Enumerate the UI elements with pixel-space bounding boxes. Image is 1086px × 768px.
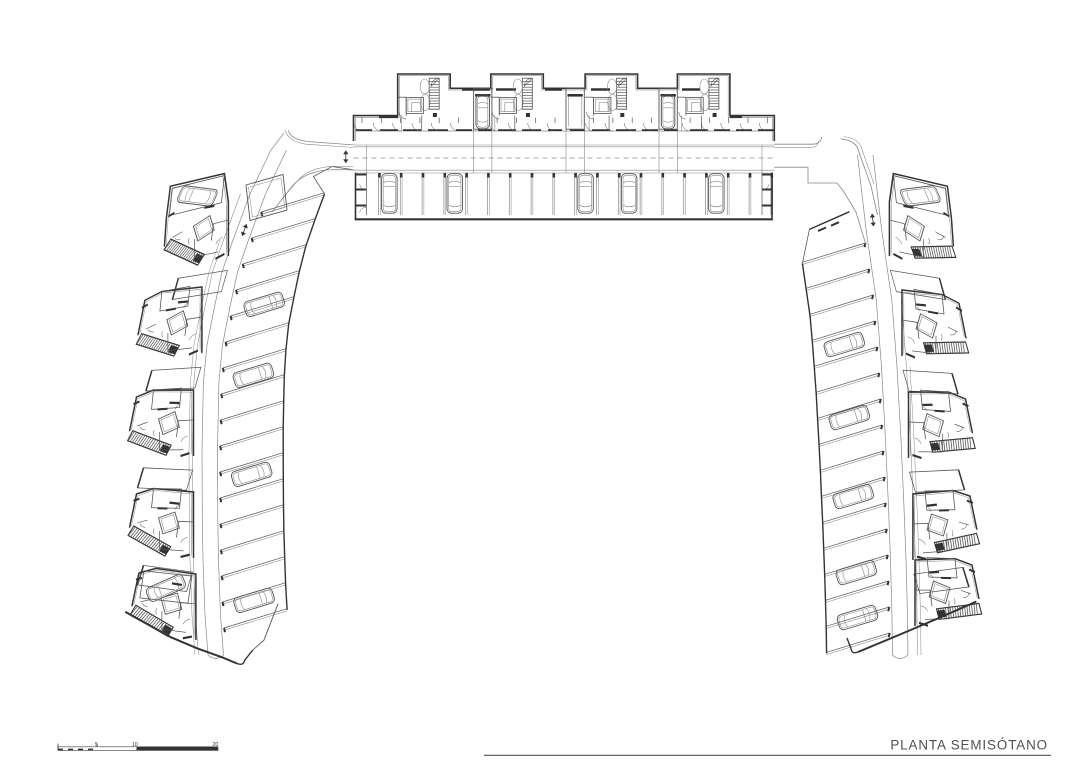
svg-text:5: 5 (95, 742, 98, 748)
svg-text:10: 10 (132, 742, 138, 748)
svg-text:20: 20 (213, 742, 219, 748)
svg-text:PLANTA SEMISÓTANO: PLANTA SEMISÓTANO (890, 738, 1048, 753)
